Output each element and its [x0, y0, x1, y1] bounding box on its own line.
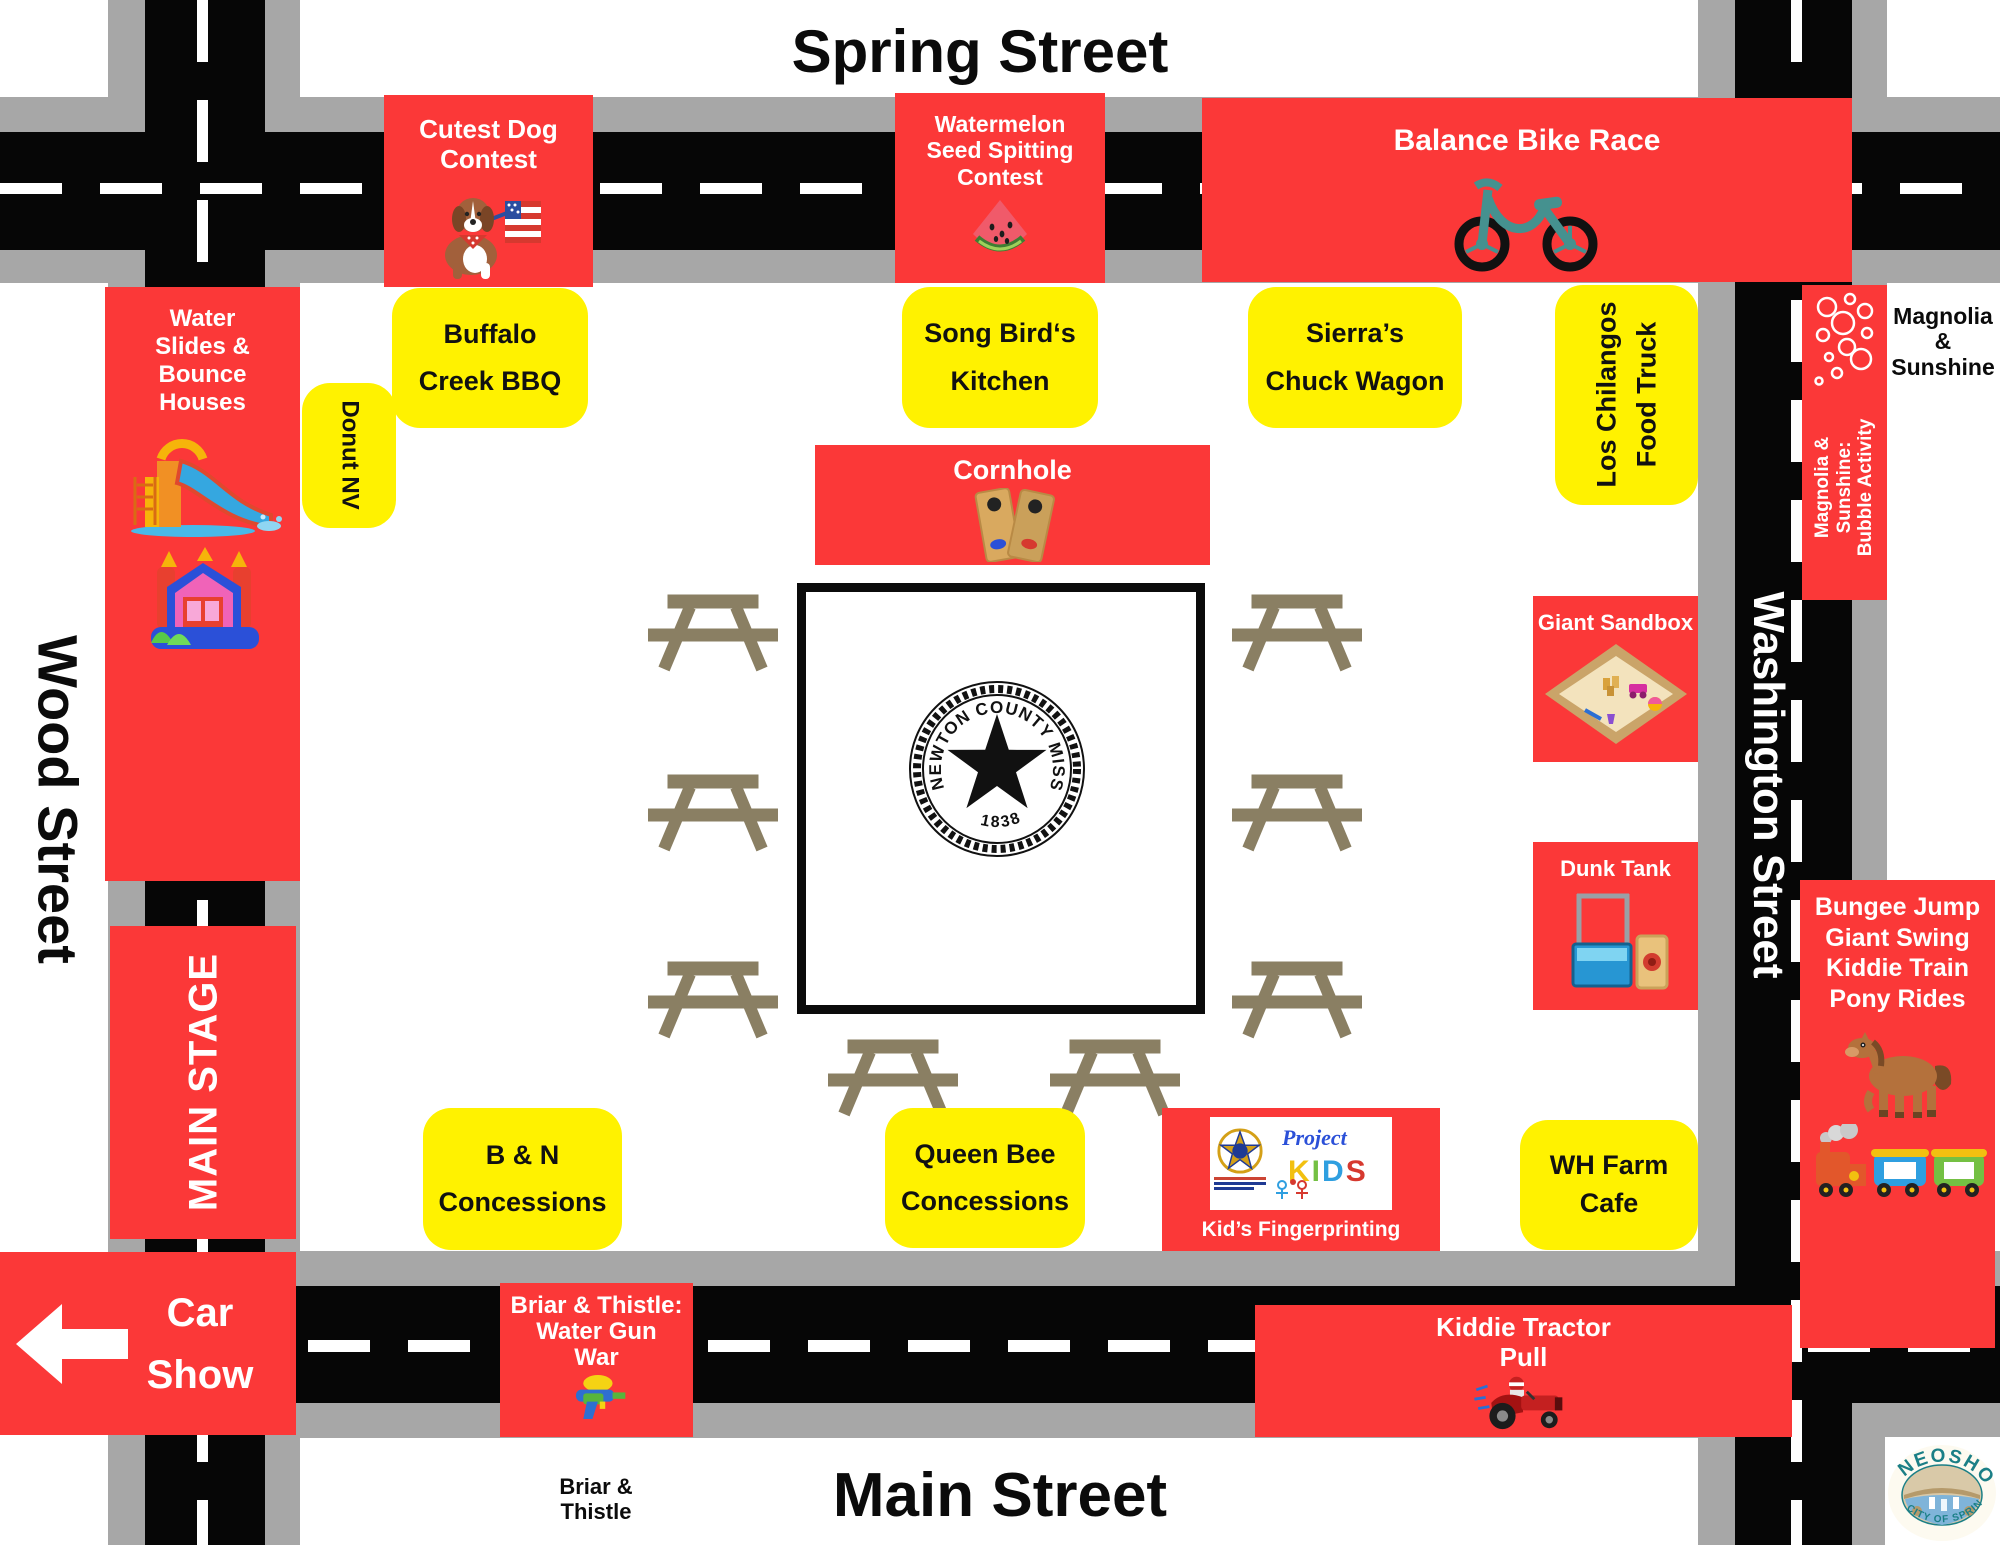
kiddie-tractor-icon	[1472, 1373, 1576, 1431]
picnic-table	[648, 952, 778, 1044]
bubble-activity-label: Magnolia & Sunshine: Bubble Activity	[1812, 419, 1878, 557]
sandbox-icon	[1541, 640, 1691, 748]
sierras-chuck-wagon-booth: Sierra’s Chuck Wagon	[1248, 287, 1462, 428]
bn-concessions-booth: B & N Concessions	[423, 1108, 622, 1250]
project-kids-project-text: Project	[1282, 1125, 1386, 1151]
newton-county-seal: NEWTON COUNTY MISSOURI 1838	[902, 674, 1092, 864]
briar-thistle-note-label: Briar & Thistle	[559, 1474, 632, 1525]
briar-thistle-water-gun-zone: Briar & Thistle: Water Gun War	[500, 1283, 693, 1437]
picnic-table	[1232, 952, 1362, 1044]
dog-with-flag-icon	[429, 177, 549, 281]
donut-nv-booth: Donut NV	[302, 383, 396, 528]
main-street-title: Main Street	[790, 1452, 1210, 1538]
car-show-label: Car Show	[147, 1282, 254, 1406]
wh-farm-cafe-booth: WH Farm Cafe	[1520, 1120, 1698, 1250]
washington-street-label: Washington Street	[1743, 591, 1793, 978]
dunk-tank-icon	[1557, 886, 1675, 990]
giant-sandbox-zone: Giant Sandbox	[1533, 596, 1698, 762]
bubble-activity-booth: Magnolia & Sunshine: Bubble Activity	[1802, 285, 1887, 600]
spring-street-title: Spring Street	[690, 14, 1270, 88]
sierras-chuck-wagon-label: Sierra’s Chuck Wagon	[1266, 310, 1445, 405]
magnolia-sunshine-note: Magnolia & Sunshine	[1888, 296, 1998, 388]
buffalo-creek-bbq-booth: Buffalo Creek BBQ	[392, 288, 588, 428]
giant-sandbox-label: Giant Sandbox	[1538, 610, 1693, 636]
balance-bike-race-label: Balance Bike Race	[1394, 124, 1661, 158]
picnic-table	[648, 585, 778, 677]
spring-street-label: Spring Street	[792, 17, 1169, 86]
bungee-rides-label: Bungee Jump Giant Swing Kiddie Train Pon…	[1815, 892, 1980, 1014]
kiddie-train-icon	[1808, 1124, 1988, 1204]
water-slides-label: Water Slides & Bounce Houses	[155, 305, 250, 417]
picnic-table	[1050, 1030, 1180, 1122]
cornhole-boards-icon	[953, 488, 1073, 562]
wood-street-label: Wood Street	[26, 635, 91, 964]
main-stage-zone: MAIN STAGE	[110, 926, 296, 1239]
water-gun-war-label: Briar & Thistle: Water Gun War	[500, 1293, 693, 1371]
horse-icon	[1835, 1022, 1961, 1122]
dunk-tank-zone: Dunk Tank	[1533, 842, 1698, 1010]
project-kids-logo: Project KIDS	[1210, 1117, 1392, 1210]
magnolia-sunshine-note-label: Magnolia & Sunshine	[1891, 304, 1995, 380]
kiddie-tractor-pull-label: Kiddie Tractor Pull	[1436, 1313, 1611, 1373]
kids-fingerprinting-label: Kid’s Fingerprinting	[1202, 1218, 1401, 1242]
kids-figures-icon	[1274, 1179, 1314, 1205]
song-birds-kitchen-label: Song Bird‘s Kitchen	[924, 310, 1076, 405]
queen-bee-booth: Queen Bee Concessions	[885, 1108, 1085, 1248]
neosho-logo: NEOSHO CITY OF SPRINGS	[1885, 1437, 2000, 1545]
main-stage-label: MAIN STAGE	[181, 953, 226, 1211]
picnic-table	[1232, 585, 1362, 677]
festival-map: Spring Street Wood Street Washington Str…	[0, 0, 2000, 1545]
balance-bike-race-zone: Balance Bike Race	[1202, 98, 1852, 282]
song-birds-kitchen-booth: Song Bird‘s Kitchen	[902, 287, 1098, 428]
buffalo-creek-bbq-label: Buffalo Creek BBQ	[419, 311, 562, 406]
water-gun-icon	[565, 1373, 629, 1421]
dunk-tank-label: Dunk Tank	[1560, 856, 1671, 882]
fop-badge-icon	[1216, 1127, 1264, 1175]
cutest-dog-contest-booth: Cutest Dog Contest	[384, 95, 593, 287]
car-show-sign: Car Show	[0, 1252, 296, 1435]
wh-farm-cafe-label: WH Farm Cafe	[1550, 1147, 1669, 1223]
main-street-label: Main Street	[833, 1460, 1167, 1531]
kids-fingerprinting-booth: Project KIDS Kid’s Fingerprinting	[1162, 1108, 1440, 1251]
picnic-table	[1232, 765, 1362, 857]
bubbles-icon	[1805, 289, 1885, 394]
donut-nv-label: Donut NV	[336, 400, 364, 509]
cornhole-zone: Cornhole	[815, 445, 1210, 565]
cornhole-label: Cornhole	[953, 455, 1072, 486]
watermelon-contest-booth: Watermelon Seed Spitting Contest	[895, 93, 1105, 283]
briar-thistle-note: Briar & Thistle	[516, 1462, 676, 1536]
los-chilangos-label: Los Chilangos Food Truck	[1588, 302, 1666, 488]
balance-bike-icon	[1442, 160, 1612, 272]
wood-street-title: Wood Street	[10, 555, 105, 1045]
kiddie-tractor-pull-zone: Kiddie Tractor Pull	[1255, 1305, 1792, 1437]
los-chilangos-booth: Los Chilangos Food Truck	[1555, 285, 1698, 505]
picnic-table	[648, 765, 778, 857]
cutest-dog-contest-label: Cutest Dog Contest	[419, 115, 558, 175]
bounce-house-icon	[133, 547, 273, 665]
queen-bee-label: Queen Bee Concessions	[901, 1131, 1069, 1226]
water-slides-zone: Water Slides & Bounce Houses	[105, 287, 300, 881]
watermelon-icon	[967, 194, 1033, 256]
bn-concessions-label: B & N Concessions	[438, 1132, 606, 1227]
bungee-rides-zone: Bungee Jump Giant Swing Kiddie Train Pon…	[1800, 880, 1995, 1348]
water-slide-icon	[123, 427, 283, 539]
watermelon-contest-label: Watermelon Seed Spitting Contest	[927, 111, 1074, 190]
